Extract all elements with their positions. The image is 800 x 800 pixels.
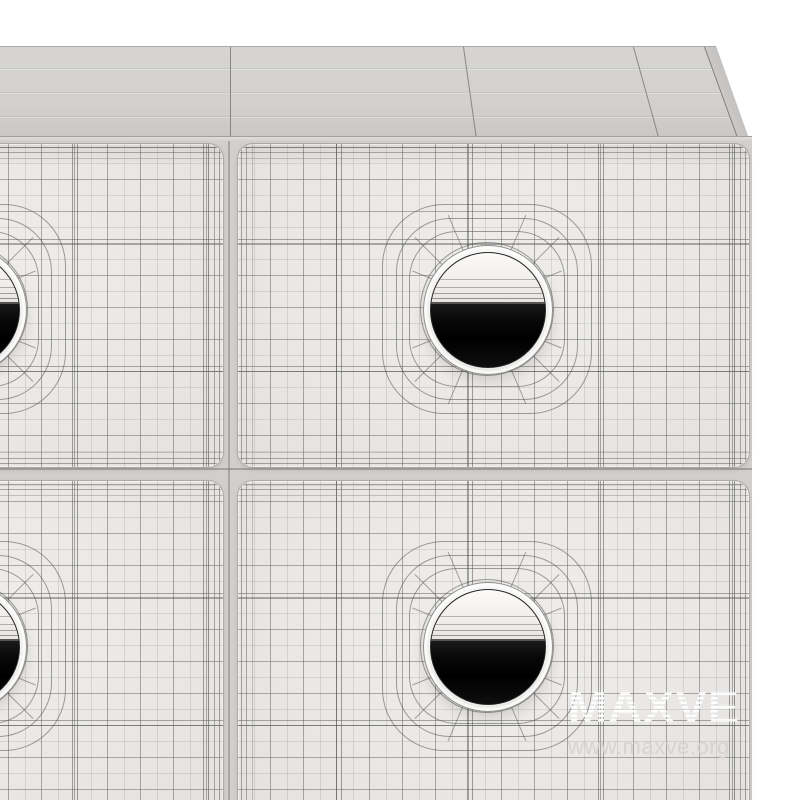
top-seam-line <box>633 47 659 137</box>
drawer-front-bottom-left <box>0 480 224 800</box>
drawer-front-top-left <box>0 143 224 468</box>
watermark: MAXVE www.maxve.org <box>568 684 763 760</box>
watermark-brand-text: MAXVE <box>568 684 763 729</box>
drawer-gap-shadow-vertical <box>228 141 230 800</box>
cutout-bevel <box>423 582 553 712</box>
drawer-front-top-right <box>237 143 750 468</box>
cutout-hole <box>0 252 20 368</box>
drawer-handle-cutout <box>0 204 66 414</box>
cutout-inner-lip <box>0 590 19 641</box>
cutout-inner-lip <box>0 253 19 304</box>
drawer-handle-cutout <box>0 541 66 751</box>
top-seam-line <box>230 47 231 137</box>
top-right-edge-band <box>704 47 752 137</box>
cabinet-top-surface <box>0 46 752 137</box>
drawer-handle-cutout <box>382 204 592 414</box>
cutout-hole <box>0 589 20 705</box>
drawer-handle-cutout <box>382 541 592 751</box>
cutout-hole <box>430 589 546 705</box>
watermark-website-text: www.maxve.org <box>568 734 763 760</box>
cutout-inner-lip <box>431 590 545 641</box>
drawer-gap-shadow-horizontal <box>0 468 752 470</box>
cutout-bevel <box>423 245 553 375</box>
top-seam-line <box>463 47 477 137</box>
cutout-hole <box>430 252 546 368</box>
wireframe-render-canvas: MAXVE www.maxve.org <box>0 0 800 800</box>
cutout-inner-lip <box>431 253 545 304</box>
